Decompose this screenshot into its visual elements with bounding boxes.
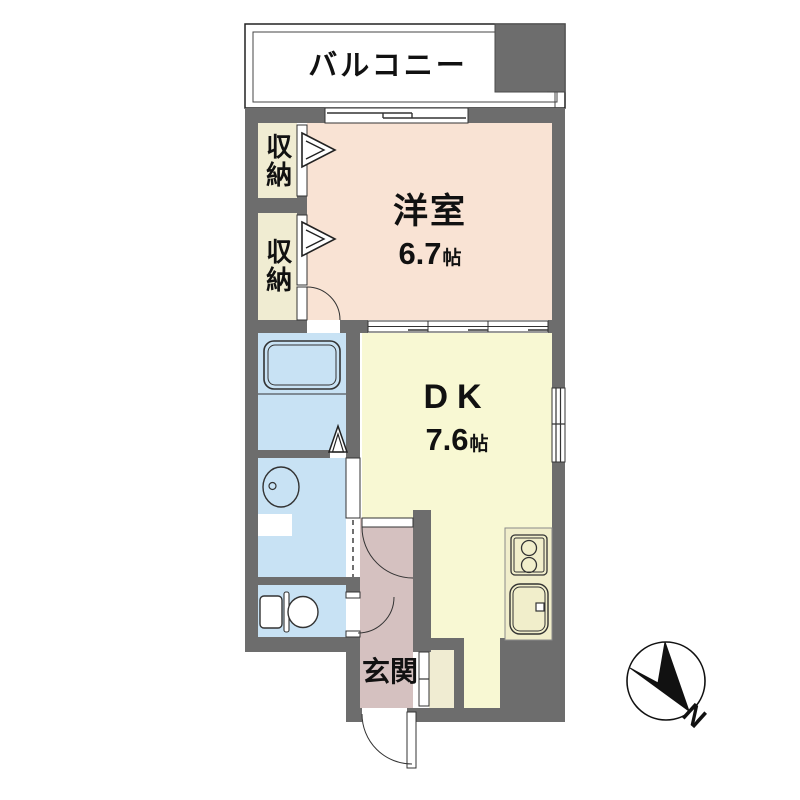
dk-floor-nook [464, 638, 500, 708]
storage-top-floor [258, 123, 297, 198]
toilet-icon [260, 592, 318, 632]
wall-room-south-a [258, 320, 307, 333]
balcony-partition-block [495, 24, 565, 92]
wall-dk-bottom-a [431, 638, 464, 650]
floor-plan-drawing [0, 0, 800, 800]
wall-bottom-entry-right [407, 708, 565, 722]
wall-mid-column-a [346, 333, 360, 458]
wall-washroom-toilet [258, 577, 346, 585]
shoe-closet-floor [429, 650, 454, 708]
door-arc [362, 714, 412, 764]
sliding-partition [368, 321, 548, 332]
wall-closet-door-post [297, 196, 307, 215]
dk-floor-main [362, 333, 552, 518]
washroom-sliding-door [346, 458, 360, 577]
balcony-area [245, 24, 565, 108]
storage-bottom-floor [258, 213, 297, 320]
balcony-window [325, 108, 468, 123]
floor-plan: バルコニー 収納 収納 洋室 6.7帖 DK 7.6帖 玄関 N [0, 0, 800, 800]
wall-bottom-entry-left [346, 708, 362, 722]
wall-shoe-closet-east [454, 650, 464, 708]
dk-side-window [552, 388, 565, 462]
wall-entrance-right [413, 510, 431, 652]
wall-bottom-left [245, 637, 360, 652]
wall-top-right [468, 108, 565, 123]
wall-left [245, 108, 258, 652]
wall-room-south-c [548, 320, 552, 333]
washing-machine-pan [258, 514, 292, 536]
wall-right-upper [552, 108, 565, 388]
entrance-floor [360, 518, 413, 708]
entrance-door [362, 712, 416, 768]
western-room-floor [307, 123, 552, 320]
wall-bath-washroom [258, 450, 330, 458]
wall-room-south-b [340, 320, 368, 333]
shoe-closet-door [419, 652, 429, 706]
bathroom-floor [258, 333, 346, 450]
compass-icon [627, 642, 705, 720]
